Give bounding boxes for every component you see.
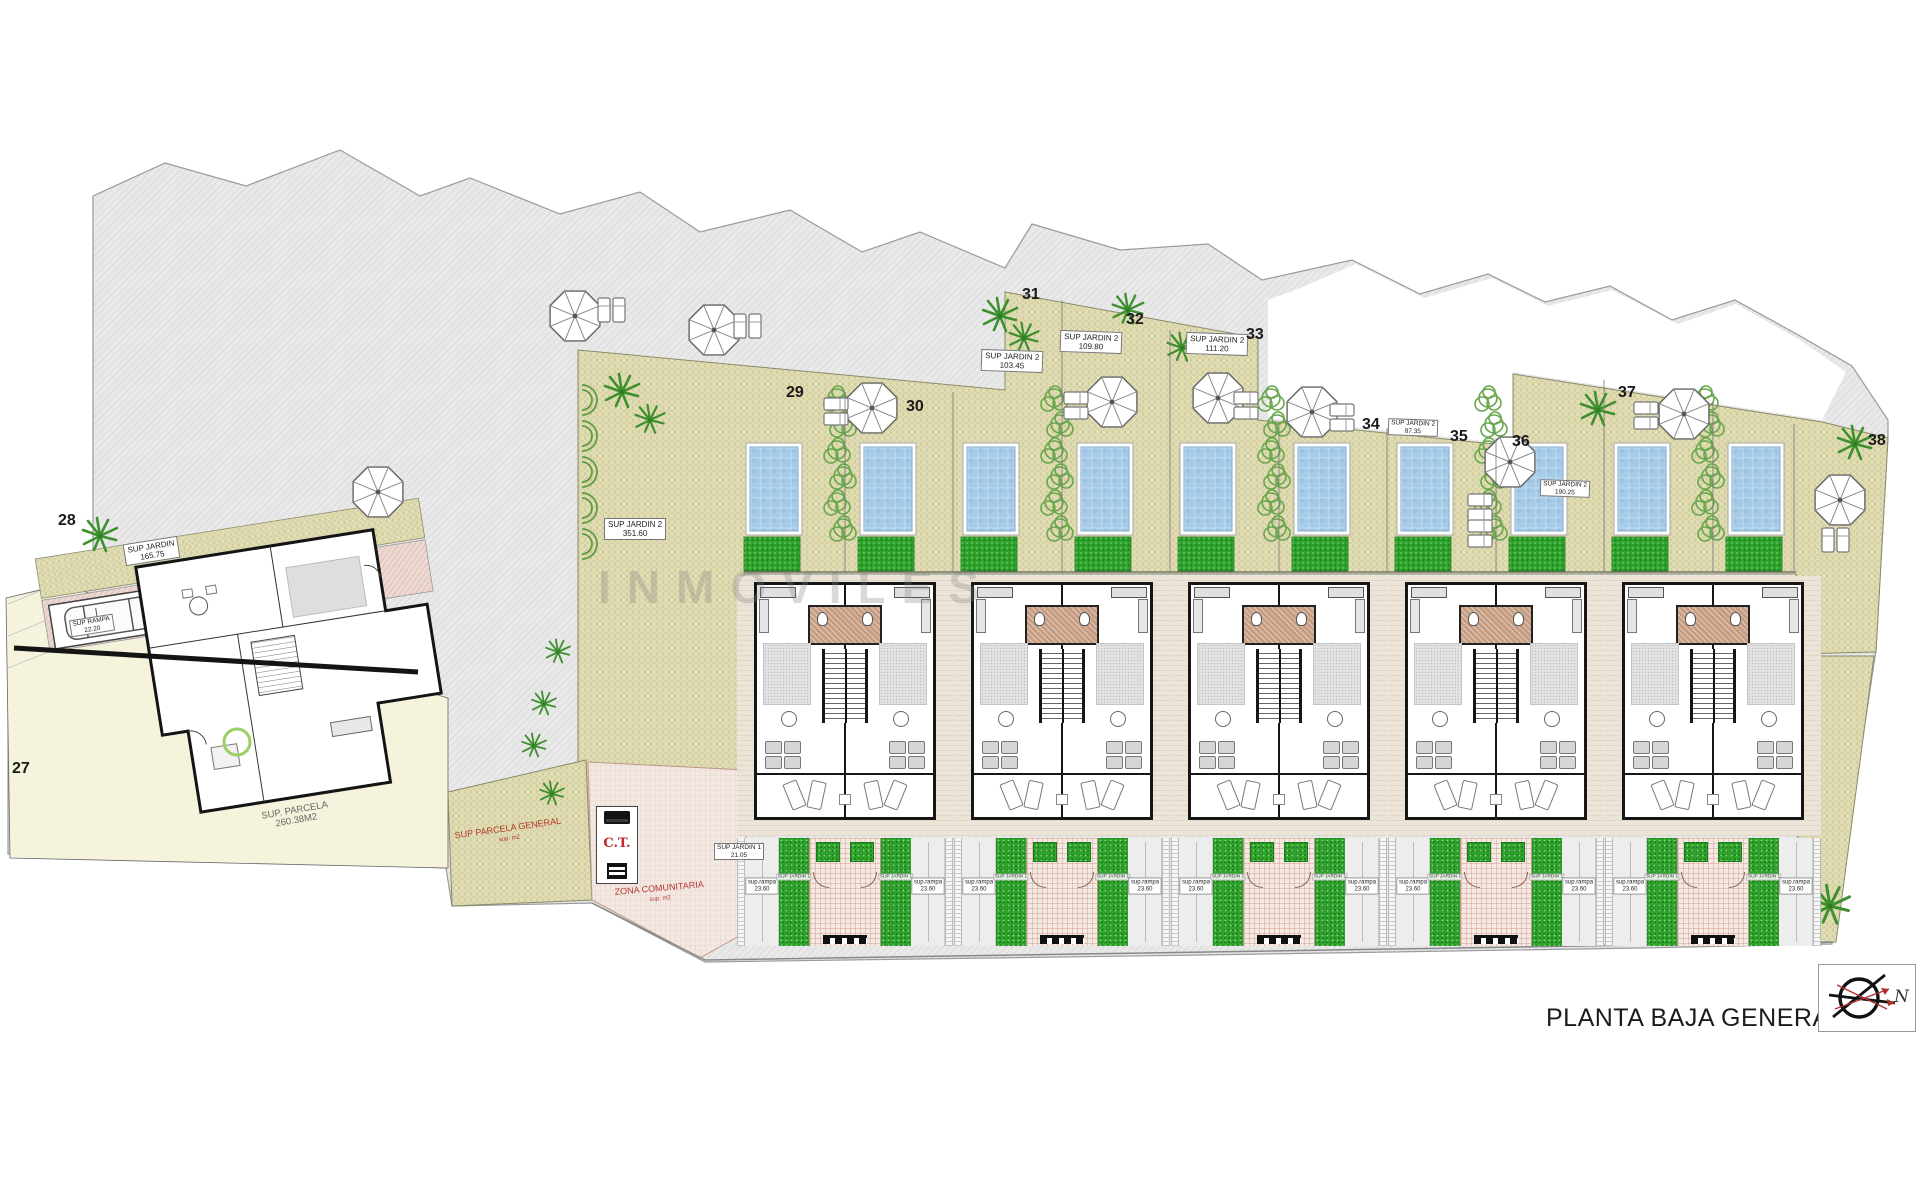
staircase [822, 649, 868, 723]
stair-strip [1388, 838, 1396, 946]
lawn-strip [1612, 537, 1668, 571]
living-rug [1530, 643, 1578, 705]
ramp-strip: sup.rampa 23.60 [1562, 838, 1596, 946]
hedge-square [1467, 842, 1491, 862]
pool [963, 443, 1019, 535]
plot-number-27: 27 [12, 760, 30, 778]
parasol-icon [847, 383, 897, 433]
staircase [1690, 649, 1736, 723]
lawn-strip [1509, 537, 1565, 571]
label-jardin-32: SUP JARDIN 2109.80 [1060, 330, 1123, 354]
plot-number-28: 28 [58, 512, 76, 530]
door-arc [1295, 872, 1311, 888]
door-arc [1512, 872, 1528, 888]
sun-lounger-icon [806, 780, 826, 811]
pool [860, 443, 916, 535]
house-walls [1188, 582, 1370, 820]
parasol-icon [353, 467, 403, 517]
door-arc [1247, 872, 1263, 888]
entry-strips: sup.rampa 23.60 SUP JARDIN 1 SUP JARDIN … [1605, 838, 1821, 946]
transformer-icon [604, 811, 630, 824]
ramp-label: sup.rampa 23.60 [1179, 877, 1212, 894]
watermark-text: INMOVILES [598, 560, 995, 614]
sun-lounger-icon [1234, 407, 1258, 419]
ramp-strip: sup.rampa 23.60 [911, 838, 945, 946]
round-table [1432, 711, 1448, 727]
sun-lounger-icon [1650, 779, 1674, 811]
sofa [1416, 741, 1452, 769]
label-jardin1-entry: SUP JARDIN 121.05 [714, 843, 764, 860]
stair-strip [1162, 838, 1170, 946]
round-table [893, 711, 909, 727]
label-jardin-34: SUP JARDIN 287.35 [1388, 418, 1439, 437]
round-table [1649, 711, 1665, 727]
round-table [781, 711, 797, 727]
sun-lounger-icon [999, 779, 1023, 811]
living-rug [1096, 643, 1144, 705]
living-rug [980, 643, 1028, 705]
parasol-icon [1087, 377, 1137, 427]
ct-label: C.T. [603, 836, 630, 851]
sun-lounger-icon [1080, 780, 1100, 811]
staircase [1039, 649, 1085, 723]
lawn-strip [1292, 537, 1348, 571]
sun-lounger-icon [1837, 528, 1849, 552]
entry-patio [809, 838, 881, 946]
hedge-square [1718, 842, 1742, 862]
parasol-icon [1815, 475, 1865, 525]
jardin1-strip: SUP JARDIN 1 [1430, 838, 1460, 946]
entry-gate-icon [1040, 935, 1084, 944]
pool [1180, 443, 1236, 535]
plot-number-29: 29 [786, 384, 804, 402]
jardin1-strip: SUP JARDIN 1 [881, 838, 911, 946]
sun-lounger-icon [782, 779, 806, 811]
terrace-wall-line [1625, 773, 1801, 775]
sun-lounger-icon [1064, 407, 1088, 419]
sun-lounger-icon [1100, 779, 1124, 811]
sun-lounger-icon [1822, 528, 1834, 552]
ramp-strip: sup.rampa 23.60 [1345, 838, 1379, 946]
label-jardin-38: SUP JARDIN 2190.25 [1540, 479, 1591, 498]
hedge-square [1067, 842, 1091, 862]
terrace-wall-line [757, 773, 933, 775]
sun-lounger-icon [1457, 780, 1477, 811]
hedge-square [1501, 842, 1525, 862]
jardin1-label: SUP JARDIN 1 [1530, 873, 1565, 880]
jardin1-label: SUP JARDIN 1 [1645, 873, 1680, 880]
jardin1-strip: SUP JARDIN 1 [1749, 838, 1779, 946]
sofa [982, 741, 1018, 769]
pool [1728, 443, 1784, 535]
bathroom-block [1242, 605, 1316, 645]
sun-lounger-icon [824, 398, 848, 410]
sun-lounger-icon [1023, 780, 1043, 811]
round-table [998, 711, 1014, 727]
sun-lounger-icon [824, 413, 848, 425]
plot-number-31: 31 [1022, 286, 1040, 304]
ramp-label: sup.rampa 23.60 [1613, 877, 1646, 894]
stair-strip [1596, 838, 1604, 946]
door-arc [1464, 872, 1480, 888]
plot-number-34: 34 [1362, 416, 1380, 434]
kitchen-counter [1138, 599, 1148, 633]
side-table [1056, 794, 1068, 805]
plot-number-33: 33 [1246, 326, 1264, 344]
ramp-strip: sup.rampa 23.60 [1396, 838, 1430, 946]
kitchen-counter [1355, 599, 1365, 633]
plot-number-30: 30 [906, 398, 924, 416]
ramp-strip: sup.rampa 23.60 [962, 838, 996, 946]
sun-lounger-icon [863, 780, 883, 811]
pool [1077, 443, 1133, 535]
terrace-wall-line [974, 773, 1150, 775]
sun-lounger-icon [749, 314, 761, 338]
side-table [1490, 794, 1502, 805]
door-arc [1681, 872, 1697, 888]
plot-number-38: 38 [1868, 432, 1886, 450]
house-deck [1388, 576, 1604, 836]
living-rug [1197, 643, 1245, 705]
jardin1-label: SUP JARDIN 1 [777, 873, 812, 880]
sun-lounger-icon [1240, 780, 1260, 811]
parasol-icon [689, 305, 739, 355]
jardin1-label: SUP JARDIN 1 [1428, 873, 1463, 880]
switchgear-icon [607, 863, 627, 879]
side-table [839, 794, 851, 805]
kitchen-counter [1628, 587, 1664, 598]
staircase [1256, 649, 1302, 723]
entry-patio [1026, 838, 1098, 946]
site-plan-page: sup.rampa 23.60 SUP JARDIN 1 SUP JARDIN … [0, 0, 1920, 1200]
ramp-strip: sup.rampa 23.60 [1613, 838, 1647, 946]
terrace-wall-line [1191, 773, 1367, 775]
entry-strips: sup.rampa 23.60 SUP JARDIN 1 SUP JARDIN … [1171, 838, 1387, 946]
ramp-label: sup.rampa 23.60 [1128, 877, 1161, 894]
transformer-ct-box: C.T. [596, 806, 638, 884]
building-5: sup.rampa 23.60 SUP JARDIN 1 SUP JARDIN … [1605, 576, 1821, 950]
jardin1-strip: SUP JARDIN 1 [779, 838, 809, 946]
lawn-strip [1075, 537, 1131, 571]
sun-lounger-icon [1330, 404, 1354, 416]
lawn-strip [1178, 537, 1234, 571]
kitchen-counter [1194, 587, 1230, 598]
bathroom-block [1459, 605, 1533, 645]
stair-strip [1813, 838, 1821, 946]
sofa [1106, 741, 1142, 769]
jardin1-strip: SUP JARDIN 1 [996, 838, 1026, 946]
entry-strips: sup.rampa 23.60 SUP JARDIN 1 SUP JARDIN … [737, 838, 953, 946]
jardin1-strip: SUP JARDIN 1 [1532, 838, 1562, 946]
sun-lounger-icon [1468, 535, 1492, 547]
house-deck [1171, 576, 1387, 836]
house-walls [1405, 582, 1587, 820]
bathroom-block [1025, 605, 1099, 645]
house-deck [954, 576, 1170, 836]
kitchen-counter [1572, 599, 1582, 633]
kitchen-counter [1193, 599, 1203, 633]
label-jardin-33: SUP JARDIN 2111.20 [1186, 332, 1249, 356]
house-walls [971, 582, 1153, 820]
sun-lounger-icon [1234, 392, 1258, 404]
entry-gate-icon [823, 935, 867, 944]
living-rug [1747, 643, 1795, 705]
ramp-strip: sup.rampa 23.60 [1179, 838, 1213, 946]
sun-lounger-icon [1514, 780, 1534, 811]
pool [746, 443, 802, 535]
kitchen-counter [1545, 587, 1581, 598]
door-arc [1078, 872, 1094, 888]
ramp-label: sup.rampa 23.60 [1345, 877, 1378, 894]
building-2: sup.rampa 23.60 SUP JARDIN 1 SUP JARDIN … [954, 576, 1170, 950]
round-table [1544, 711, 1560, 727]
plot-number-35: 35 [1450, 428, 1468, 446]
sun-lounger-icon [1468, 520, 1492, 532]
lawn-strip [1395, 537, 1451, 571]
house-deck [1605, 576, 1821, 836]
plot-number-37: 37 [1618, 384, 1636, 402]
kitchen-counter [1111, 587, 1147, 598]
building-4: sup.rampa 23.60 SUP JARDIN 1 SUP JARDIN … [1388, 576, 1604, 950]
page-title: PLANTA BAJA GENERAL [1546, 1004, 1844, 1033]
sun-lounger-icon [1317, 779, 1341, 811]
kitchen-counter [1627, 599, 1637, 633]
stair-strip [1379, 838, 1387, 946]
kitchen-counter [1789, 599, 1799, 633]
stair-strip [1605, 838, 1613, 946]
ramp-label: sup.rampa 23.60 [1396, 877, 1429, 894]
sun-lounger-icon [1634, 417, 1658, 429]
entry-gate-icon [1691, 935, 1735, 944]
hedge-square [1284, 842, 1308, 862]
sun-lounger-icon [1330, 419, 1354, 431]
pool [1294, 443, 1350, 535]
ramp-label: sup.rampa 23.60 [745, 877, 778, 894]
living-rug [879, 643, 927, 705]
living-rug [1313, 643, 1361, 705]
jardin1-strip: SUP JARDIN 1 [1213, 838, 1243, 946]
side-table [1707, 794, 1719, 805]
side-table [1273, 794, 1285, 805]
sofa [889, 741, 925, 769]
entry-strips: sup.rampa 23.60 SUP JARDIN 1 SUP JARDIN … [954, 838, 1170, 946]
entry-gate-icon [1474, 935, 1518, 944]
ramp-strip: sup.rampa 23.60 [1128, 838, 1162, 946]
sofa [1540, 741, 1576, 769]
parasol-icon [550, 291, 600, 341]
sun-lounger-icon [883, 779, 907, 811]
stair-strip [954, 838, 962, 946]
hedge-square [1033, 842, 1057, 862]
pool [1397, 443, 1453, 535]
sun-lounger-icon [1468, 509, 1492, 521]
sun-lounger-icon [1751, 779, 1775, 811]
parasol-icon [1659, 389, 1709, 439]
ramp-label: sup.rampa 23.60 [911, 877, 944, 894]
lawn-strip [1726, 537, 1782, 571]
door-arc [1729, 872, 1745, 888]
stair-strip [945, 838, 953, 946]
jardin1-strip: SUP JARDIN 1 [1098, 838, 1128, 946]
north-compass: N [1818, 964, 1916, 1032]
sun-lounger-icon [1216, 779, 1240, 811]
jardin1-label: SUP JARDIN 1 [994, 873, 1029, 880]
ramp-strip: sup.rampa 23.60 [1779, 838, 1813, 946]
ramp-label: sup.rampa 23.60 [1779, 877, 1812, 894]
jardin1-label: SUP JARDIN 1 [879, 873, 914, 880]
kitchen-counter [1410, 599, 1420, 633]
round-table [1215, 711, 1231, 727]
hedge-square [1250, 842, 1274, 862]
entry-gate-icon [1257, 935, 1301, 944]
ramp-label: sup.rampa 23.60 [1562, 877, 1595, 894]
stair-strip [1171, 838, 1179, 946]
door-arc [1030, 872, 1046, 888]
jardin1-strip: SUP JARDIN 1 [1315, 838, 1345, 946]
round-table [1327, 711, 1343, 727]
round-table [1761, 711, 1777, 727]
house-walls [754, 582, 936, 820]
terrace-wall-line [1408, 773, 1584, 775]
house-walls [1622, 582, 1804, 820]
round-table [1110, 711, 1126, 727]
pool [1614, 443, 1670, 535]
jardin1-label: SUP JARDIN 1 [1211, 873, 1246, 880]
sofa [1323, 741, 1359, 769]
sun-lounger-icon [1064, 392, 1088, 404]
sun-lounger-icon [1297, 780, 1317, 811]
jardin1-strip: SUP JARDIN 1 [1647, 838, 1677, 946]
living-rug [763, 643, 811, 705]
sun-lounger-icon [1731, 780, 1751, 811]
bathroom-block [1676, 605, 1750, 645]
jardin1-label: SUP JARDIN 1 [1747, 873, 1782, 880]
door-arc [813, 872, 829, 888]
staircase [1473, 649, 1519, 723]
house-deck [737, 576, 953, 836]
sun-lounger-icon [1674, 780, 1694, 811]
living-rug [1631, 643, 1679, 705]
sun-lounger-icon [1534, 779, 1558, 811]
sun-lounger-icon [1433, 779, 1457, 811]
sofa [765, 741, 801, 769]
hedge-square [816, 842, 840, 862]
jardin1-label: SUP JARDIN 1 [1313, 873, 1348, 880]
hedge-square [1684, 842, 1708, 862]
ramp-label: sup.rampa 23.60 [962, 877, 995, 894]
sofa [1757, 741, 1793, 769]
sofa [1633, 741, 1669, 769]
building-1: sup.rampa 23.60 SUP JARDIN 1 SUP JARDIN … [737, 576, 953, 950]
plot-number-36: 36 [1512, 433, 1530, 451]
hedge-square [850, 842, 874, 862]
sun-lounger-icon [734, 314, 746, 338]
door-arc [861, 872, 877, 888]
sun-lounger-icon [1634, 402, 1658, 414]
kitchen-counter [1328, 587, 1364, 598]
sun-lounger-icon [598, 298, 610, 322]
label-jardin-29: SUP JARDIN 2351.60 [604, 518, 666, 540]
label-jardin-31: SUP JARDIN 2103.45 [981, 349, 1044, 373]
kitchen-counter [1762, 587, 1798, 598]
sun-lounger-icon [613, 298, 625, 322]
jardin1-label: SUP JARDIN 1 [1096, 873, 1131, 880]
plot-number-32: 32 [1126, 311, 1144, 329]
kitchen-counter [1411, 587, 1447, 598]
entry-strips: sup.rampa 23.60 SUP JARDIN 1 SUP JARDIN … [1388, 838, 1604, 946]
entry-patio [1243, 838, 1315, 946]
building-3: sup.rampa 23.60 SUP JARDIN 1 SUP JARDIN … [1171, 576, 1387, 950]
entry-patio [1677, 838, 1749, 946]
sofa [1199, 741, 1235, 769]
sun-lounger-icon [1468, 494, 1492, 506]
living-rug [1414, 643, 1462, 705]
north-letter: N [1894, 987, 1909, 1007]
entry-patio [1460, 838, 1532, 946]
